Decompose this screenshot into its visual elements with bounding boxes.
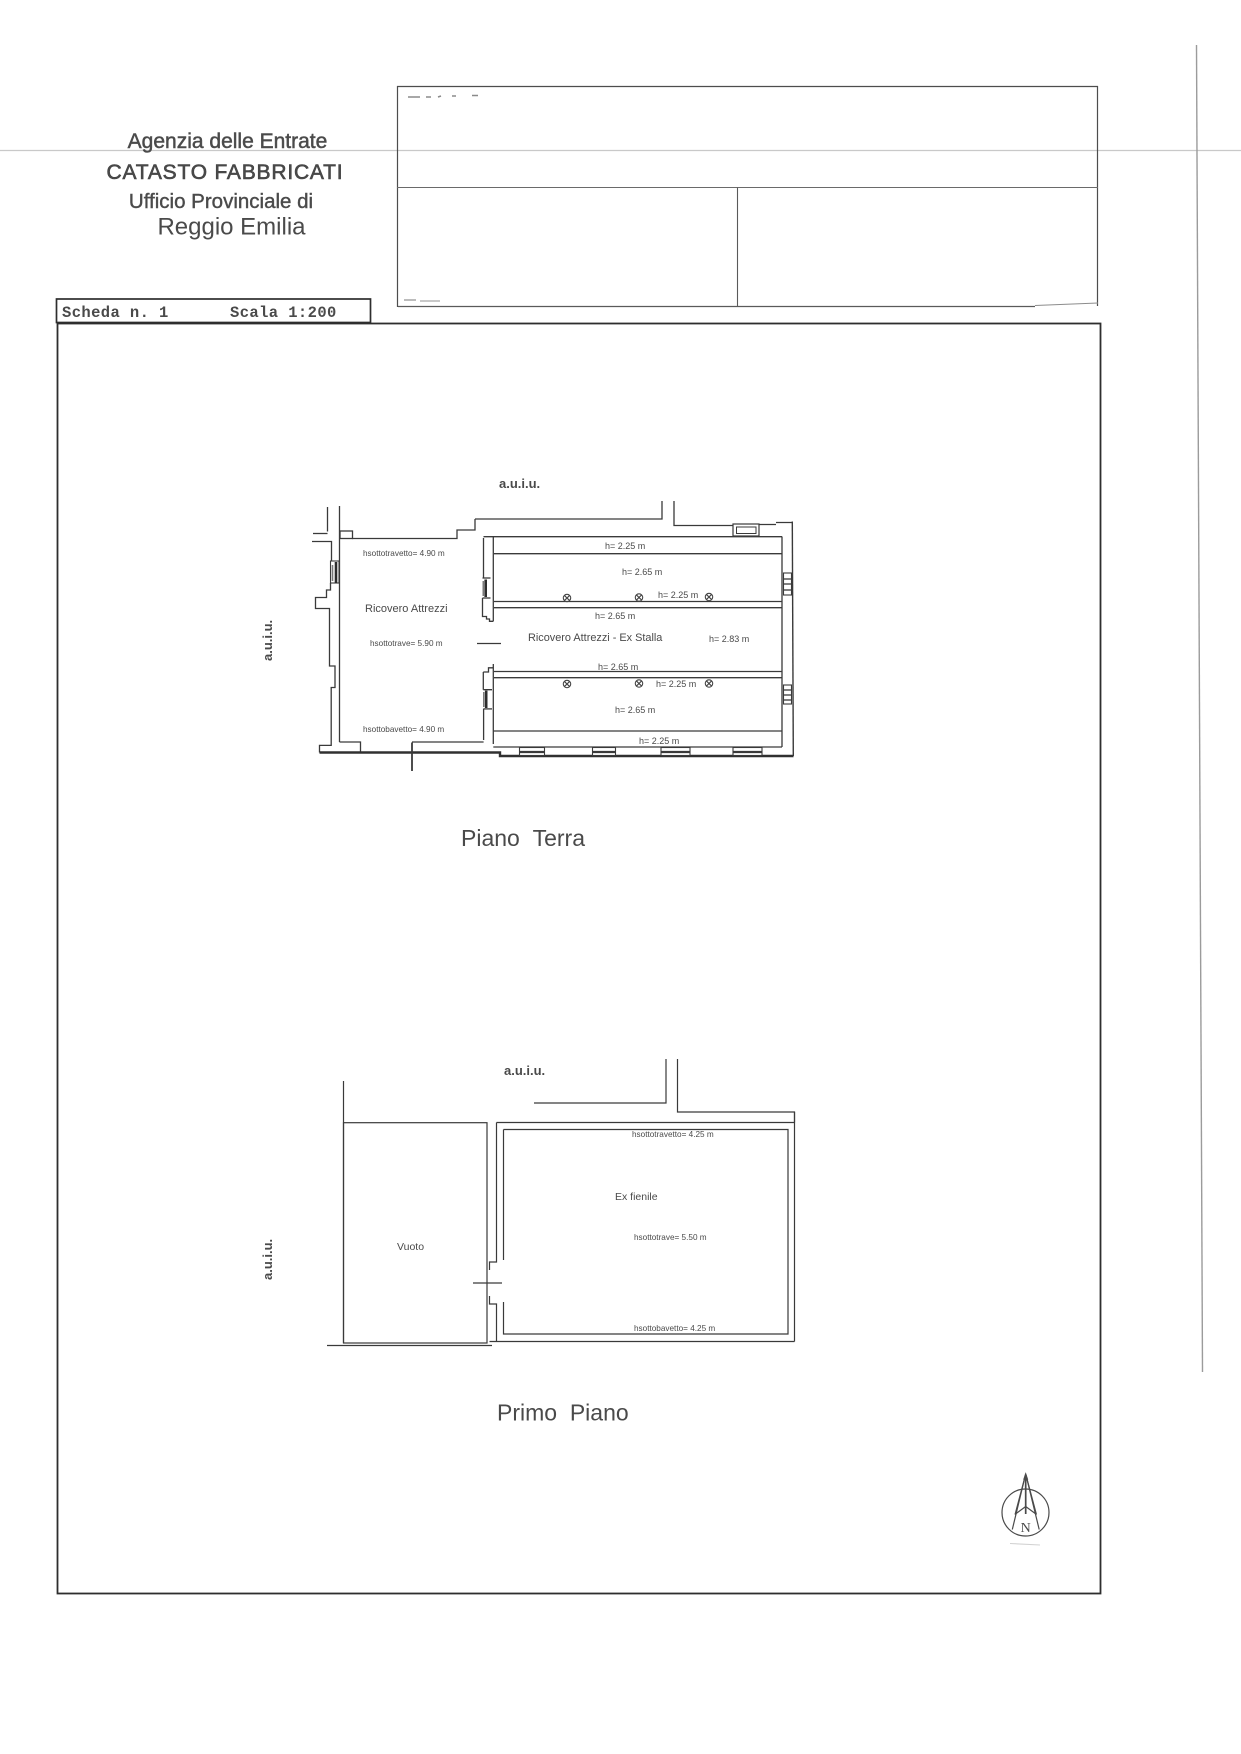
svg-text:Agenzia delle Entrate: Agenzia delle Entrate [128, 130, 328, 153]
svg-text:Scheda n. 1: Scheda n. 1 [62, 304, 169, 322]
svg-text:h= 2.25 m: h= 2.25 m [658, 590, 698, 600]
svg-text:Primo Piano: Primo Piano [497, 1400, 629, 1426]
svg-text:h= 2.65 m: h= 2.65 m [595, 611, 635, 621]
svg-text:Ex fienile: Ex fienile [615, 1191, 658, 1203]
svg-text:hsottotrave= 5.90 m: hsottotrave= 5.90 m [370, 639, 443, 648]
svg-text:Scala 1:200: Scala 1:200 [230, 304, 337, 322]
svg-text:h= 2.65 m: h= 2.65 m [598, 662, 638, 672]
svg-text:h= 2.65 m: h= 2.65 m [615, 705, 655, 715]
svg-text:hsottotrave= 5.50 m: hsottotrave= 5.50 m [634, 1233, 707, 1242]
svg-text:Ricovero Attrezzi: Ricovero Attrezzi [365, 603, 448, 615]
svg-text:a.u.i.u.: a.u.i.u. [499, 476, 540, 491]
svg-text:a.u.i.u.: a.u.i.u. [260, 1239, 275, 1280]
svg-text:h= 2.83 m: h= 2.83 m [709, 634, 749, 644]
svg-text:N: N [1021, 1521, 1031, 1536]
svg-text:Reggio Emilia: Reggio Emilia [157, 214, 306, 241]
svg-text:hsottotravetto= 4.25 m: hsottotravetto= 4.25 m [632, 1130, 714, 1139]
svg-text:Piano Terra: Piano Terra [461, 825, 585, 851]
svg-text:h= 2.25 m: h= 2.25 m [639, 736, 679, 746]
svg-text:Ricovero Attrezzi - Ex Stalla: Ricovero Attrezzi - Ex Stalla [528, 632, 663, 644]
svg-text:h= 2.25 m: h= 2.25 m [656, 679, 696, 689]
svg-text:h= 2.65 m: h= 2.65 m [622, 567, 662, 577]
svg-text:hsottobavetto= 4.90 m: hsottobavetto= 4.90 m [363, 725, 444, 734]
svg-text:hsottotravetto= 4.90 m: hsottotravetto= 4.90 m [363, 549, 445, 558]
svg-text:h= 2.25 m: h= 2.25 m [605, 541, 645, 551]
svg-text:a.u.i.u.: a.u.i.u. [260, 620, 275, 661]
svg-text:hsottobavetto= 4.25 m: hsottobavetto= 4.25 m [634, 1324, 715, 1333]
svg-text:CATASTO FABBRICATI: CATASTO FABBRICATI [107, 161, 344, 184]
svg-text:Ufficio Provinciale di: Ufficio Provinciale di [129, 190, 313, 213]
svg-text:Vuoto: Vuoto [397, 1241, 424, 1253]
svg-text:a.u.i.u.: a.u.i.u. [504, 1063, 545, 1078]
